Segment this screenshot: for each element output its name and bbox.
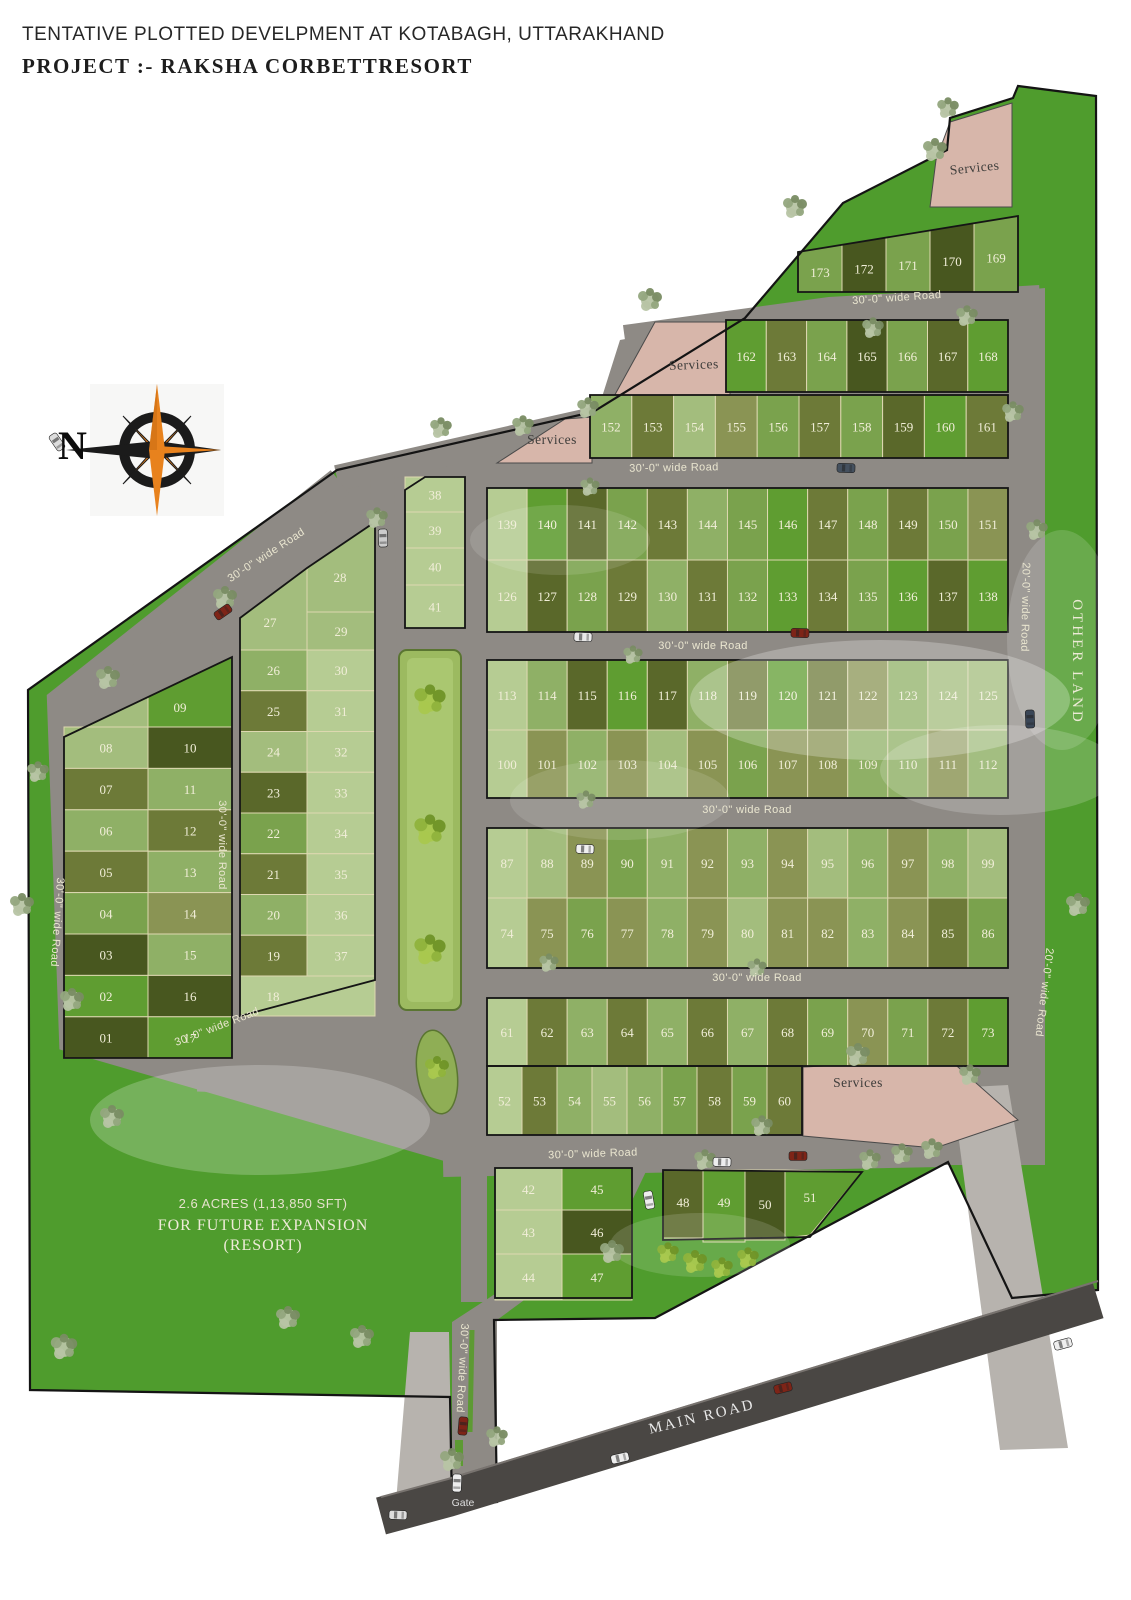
plot-number: 143 (658, 517, 678, 532)
tree-part (936, 151, 944, 159)
plot-number: 92 (701, 856, 714, 871)
tree-part (758, 1115, 765, 1122)
plot-number: 39 (429, 523, 442, 538)
plot-number: 146 (778, 517, 798, 532)
plot-number: 84 (901, 926, 915, 941)
tree-part (515, 427, 524, 436)
car-rear (1027, 722, 1034, 725)
plot-number: 93 (741, 856, 754, 871)
tree-part (418, 831, 431, 844)
car-body (789, 1152, 807, 1161)
tree-part (418, 951, 431, 964)
tree-part (542, 964, 550, 972)
plot-number: 12 (184, 824, 197, 839)
plot-number: 09 (174, 700, 187, 715)
tree-part (23, 906, 31, 914)
tree-part (493, 1426, 500, 1433)
car-icon (576, 844, 594, 854)
car-windshield (842, 464, 845, 471)
road (382, 475, 392, 1122)
plot-number: 167 (938, 349, 958, 364)
tree-part (1079, 906, 1087, 914)
tree-part (871, 1161, 878, 1168)
plot-number: 43 (522, 1225, 535, 1240)
plot-number: 47 (591, 1270, 605, 1285)
car-windshield (718, 1158, 721, 1165)
plot-number: 172 (854, 261, 874, 276)
tree-part (791, 195, 799, 203)
tree-part (786, 208, 796, 218)
tree-part (437, 417, 444, 424)
tree-part (940, 109, 949, 118)
plot-number: 08 (100, 741, 113, 756)
plot-number: 24 (267, 745, 281, 760)
north-label: N (58, 422, 87, 469)
plot-number: 63 (581, 1025, 594, 1040)
tree-part (696, 1263, 704, 1271)
tree-part (580, 409, 589, 418)
plot-number: 31 (335, 704, 348, 719)
tree-part (966, 1064, 973, 1071)
plot-number: 74 (501, 926, 515, 941)
car-icon (1053, 1337, 1073, 1350)
tree-part (108, 1105, 116, 1113)
car-body (1025, 710, 1035, 728)
plot-number: 76 (581, 926, 595, 941)
plot-number: 38 (429, 488, 442, 503)
tree-part (587, 801, 593, 807)
plot-number: 94 (781, 856, 795, 871)
plot-number: 02 (100, 989, 113, 1004)
plot-number: 58 (708, 1094, 721, 1109)
plot-number: 106 (738, 757, 758, 772)
car-rear (453, 1486, 460, 1489)
plot-number: 105 (698, 757, 718, 772)
car-icon (837, 463, 855, 473)
tree-part (584, 397, 591, 404)
plot-number: 153 (643, 420, 663, 435)
plot-number: 133 (778, 589, 798, 604)
tree-part (433, 429, 442, 438)
plot-number: 29 (335, 624, 348, 639)
plot-number: 36 (335, 908, 349, 923)
tree-part (613, 1253, 621, 1261)
cloud (470, 505, 650, 575)
tree-part (651, 301, 659, 309)
tree-part (706, 1161, 713, 1168)
tree-part (587, 477, 593, 483)
road-median (470, 1330, 472, 1432)
plot-number: 148 (858, 517, 878, 532)
car-body (452, 1474, 462, 1492)
tree-part (442, 429, 449, 436)
road-label: 30'-0" wide Road (702, 804, 791, 816)
plot-number: 168 (978, 349, 998, 364)
tree-part (926, 151, 936, 161)
plot-number: 107 (778, 757, 798, 772)
plot-number: 138 (978, 589, 998, 604)
tree-part (669, 1254, 676, 1261)
tree-part (373, 507, 380, 514)
tree-part (448, 1448, 456, 1456)
road-label: 30'-0" wide Road (216, 800, 228, 889)
tree-part (103, 1118, 113, 1128)
plot-number: 114 (538, 688, 558, 703)
car-windshield (794, 1153, 797, 1160)
tree-part (968, 317, 975, 324)
tree-part (1038, 531, 1045, 538)
plot-number: 71 (901, 1025, 914, 1040)
plot-number: 163 (777, 349, 797, 364)
tree-part (646, 288, 654, 296)
plot-number: 49 (718, 1195, 731, 1210)
plot-number: 65 (661, 1025, 674, 1040)
plot-number: 87 (501, 856, 515, 871)
tree-part (378, 519, 385, 526)
plot-number: 126 (497, 589, 517, 604)
plot-number: 06 (100, 824, 114, 839)
plot-number: 64 (621, 1025, 635, 1040)
plot-number: 52 (498, 1094, 511, 1109)
plot-number: 03 (100, 948, 113, 963)
tree-part (99, 679, 109, 689)
plot-number: 99 (982, 856, 995, 871)
tree-part (109, 679, 117, 687)
plot-number: 137 (938, 589, 958, 604)
road-label: 30'-0" wide Road (629, 461, 719, 475)
tree-part (664, 1242, 671, 1249)
tree-part (113, 1118, 121, 1126)
plot-number: 75 (541, 926, 554, 941)
plot-number: 82 (821, 926, 834, 941)
tree-part (869, 317, 876, 324)
plot-number: 77 (621, 926, 635, 941)
plot-number: 13 (184, 865, 197, 880)
plot-number: 79 (701, 926, 714, 941)
car-icon (378, 529, 388, 547)
tree-part (68, 988, 76, 996)
tree-icon (783, 195, 807, 218)
tree-part (697, 1161, 706, 1170)
tree-icon (486, 1426, 508, 1447)
tree-part (39, 773, 46, 780)
tree-part (1029, 531, 1038, 540)
tree-part (363, 1338, 371, 1346)
tree-part (962, 1076, 971, 1085)
plot-number: 136 (898, 589, 918, 604)
other-land-label: OTHER LAND (1069, 599, 1085, 724)
plot-number: 53 (533, 1094, 546, 1109)
road-label: 30'-0" wide Road (712, 972, 801, 984)
car-windshield (796, 629, 799, 636)
plot-number: 60 (778, 1094, 791, 1109)
tree-part (903, 1155, 910, 1162)
tree-part (579, 801, 587, 809)
tree-part (425, 934, 435, 944)
plot-number: 171 (898, 258, 918, 273)
plot-number: 66 (701, 1025, 715, 1040)
tree-part (489, 1438, 498, 1447)
tree-part (498, 1438, 505, 1445)
car-rear (380, 541, 387, 544)
plot-number: 55 (603, 1094, 616, 1109)
car-body (837, 463, 855, 473)
future-expansion-line3: (RESORT) (223, 1237, 302, 1254)
plot-number: 15 (184, 948, 197, 963)
tree-part (453, 1461, 461, 1469)
plot-number: 68 (781, 1025, 794, 1040)
plot-number: 45 (591, 1182, 604, 1197)
tree-part (931, 138, 939, 146)
car-icon (452, 1474, 462, 1492)
plot-number: 57 (673, 1094, 687, 1109)
plot-number: 28 (334, 570, 347, 585)
plot-number: 166 (898, 349, 918, 364)
plot-number: 50 (759, 1197, 772, 1212)
plot-number: 32 (335, 745, 348, 760)
plot-number: 44 (522, 1270, 536, 1285)
project-name: PROJECT :- RAKSHA CORBETTRESORT (22, 54, 665, 79)
plot-number: 25 (267, 704, 280, 719)
tree-part (866, 1149, 873, 1156)
plot-number: 23 (267, 785, 280, 800)
tree-part (626, 656, 634, 664)
plot-number: 14 (184, 906, 198, 921)
tree-part (289, 1319, 297, 1327)
tree-part (763, 1127, 770, 1134)
car-rear (802, 1153, 804, 1160)
road-label: 20'-0" wide Road (1018, 562, 1032, 652)
plot-number: 18 (267, 989, 280, 1004)
plot-number: 108 (818, 757, 838, 772)
tree-part (221, 586, 229, 594)
road-label: 30'-0" wide Road (658, 640, 747, 652)
plot-number: 162 (736, 349, 756, 364)
plot-number: 27 (264, 615, 278, 630)
plot-number: 134 (818, 589, 838, 604)
tree-part (431, 701, 441, 711)
plot-number: 116 (618, 688, 638, 703)
tree-part (686, 1263, 696, 1273)
tree-part (944, 97, 951, 104)
plot-number: 91 (661, 856, 674, 871)
car-windshield (579, 633, 582, 640)
tree-part (971, 1076, 978, 1083)
tree-part (660, 1254, 669, 1263)
car-body (458, 1417, 469, 1436)
plot-number: 01 (100, 1031, 113, 1046)
plot-number: 161 (977, 420, 997, 435)
tree-part (1009, 401, 1016, 408)
cloud (90, 1065, 430, 1175)
plot-number: 19 (267, 948, 280, 963)
car-windshield (379, 534, 386, 537)
gate-label: Gate (452, 1497, 475, 1509)
tree-part (60, 1334, 69, 1343)
plot-number: 56 (638, 1094, 652, 1109)
plot-number: 165 (857, 349, 877, 364)
page-title: TENTATIVE PLOTTED DEVELPMENT AT KOTABAGH… (22, 24, 665, 46)
tree-part (959, 317, 968, 326)
car-rear (725, 1159, 728, 1166)
plot-number: 147 (818, 517, 838, 532)
tree-part (428, 1069, 438, 1079)
tree-part (1069, 906, 1079, 916)
tree-part (859, 1056, 867, 1064)
tree-icon (638, 288, 662, 311)
tree-part (701, 1149, 708, 1156)
plot-number: 132 (738, 589, 758, 604)
plot-number: 35 (335, 867, 348, 882)
tree-part (874, 329, 881, 336)
plot-number: 46 (591, 1225, 605, 1240)
tree-part (849, 1056, 859, 1066)
plot-number: 67 (741, 1025, 755, 1040)
tree-part (546, 953, 552, 959)
tree-part (924, 1150, 933, 1159)
plot-number: 61 (501, 1025, 514, 1040)
car-rear (586, 634, 589, 641)
car-body (378, 529, 388, 547)
tree-part (550, 964, 556, 970)
tree-part (104, 666, 112, 674)
tree-part (754, 1127, 763, 1136)
tree-part (65, 1348, 74, 1357)
plot-number: 155 (727, 420, 747, 435)
tree-part (353, 1338, 363, 1348)
tree-part (862, 1161, 871, 1170)
plot-number: 151 (978, 517, 998, 532)
plot-number: 26 (267, 663, 281, 678)
tree-part (13, 906, 23, 916)
plot-number: 40 (429, 560, 442, 575)
services-label: Services (669, 356, 719, 373)
car-icon (574, 632, 592, 642)
plot-number: 42 (522, 1182, 535, 1197)
plot-number: 80 (741, 926, 754, 941)
plot-number: 169 (986, 251, 1006, 266)
tree-part (641, 301, 651, 311)
tree-part (18, 893, 26, 901)
plot-number: 117 (658, 688, 678, 703)
car-body (389, 1510, 407, 1520)
tree-part (749, 1259, 756, 1266)
site-plan: 1731721711701691621631641651661671681521… (0, 0, 1131, 1600)
tree-part (754, 958, 760, 964)
plot-number: 11 (184, 782, 197, 797)
plot-number: 160 (936, 420, 956, 435)
car-body (791, 628, 809, 638)
tree-part (443, 1461, 453, 1471)
plot-number: 10 (184, 741, 197, 756)
plot-number: 54 (568, 1094, 582, 1109)
plot-number: 130 (658, 589, 678, 604)
plot-number: 41 (429, 600, 442, 615)
car-windshield (460, 1422, 467, 1426)
car-rear (588, 846, 591, 853)
plot-number: 144 (698, 517, 718, 532)
plot-number: 22 (267, 826, 280, 841)
car-windshield (1026, 715, 1033, 718)
plot-number: 51 (804, 1190, 817, 1205)
services-label: Services (833, 1075, 883, 1090)
plot-number: 30 (335, 663, 348, 678)
tree-part (284, 1306, 292, 1314)
plot-number: 34 (335, 826, 349, 841)
tree-part (723, 1269, 730, 1276)
plot-number: 100 (497, 757, 517, 772)
tree-part (1033, 519, 1040, 526)
car-rear (803, 630, 806, 637)
plot-number: 158 (852, 420, 872, 435)
plot-number: 145 (738, 517, 758, 532)
plot-number: 157 (810, 420, 830, 435)
plot-number: 85 (941, 926, 954, 941)
plot-number: 131 (698, 589, 718, 604)
car-icon (389, 1510, 407, 1520)
tree-icon (430, 417, 452, 438)
tree-part (369, 519, 378, 528)
tree-icon (937, 97, 959, 118)
tree-part (963, 305, 970, 312)
plot-number: 127 (537, 589, 557, 604)
plot-number: 72 (941, 1025, 954, 1040)
plot-number: 05 (100, 865, 113, 880)
services-label: Services (527, 432, 577, 447)
car-icon (458, 1417, 469, 1436)
plot-number: 33 (335, 785, 348, 800)
plot-number: 150 (938, 517, 958, 532)
car-rear (849, 465, 852, 472)
tree-part (949, 109, 956, 116)
tree-part (418, 701, 431, 714)
plot-number: 170 (942, 254, 962, 269)
plot-number: 83 (861, 926, 874, 941)
tree-part (54, 1348, 65, 1359)
tree-part (865, 329, 874, 338)
plot-number: 69 (821, 1025, 834, 1040)
tree-part (718, 1257, 725, 1264)
car-icon (1025, 710, 1035, 728)
plot-number: 156 (768, 420, 788, 435)
tree-part (1014, 413, 1021, 420)
car-icon (789, 1152, 807, 1161)
tree-part (894, 1155, 903, 1164)
plot-number: 89 (581, 856, 594, 871)
tree-part (63, 1001, 73, 1011)
tree-part (438, 1069, 446, 1077)
tree-part (425, 684, 435, 694)
plot-number: 07 (100, 782, 114, 797)
tree-part (34, 761, 41, 768)
title-block: TENTATIVE PLOTTED DEVELPMENT AT KOTABAGH… (22, 24, 665, 79)
plot-number: 96 (861, 856, 875, 871)
plot-number: 135 (858, 589, 878, 604)
tree-part (928, 1138, 935, 1145)
tree-part (1074, 893, 1082, 901)
tree-part (431, 831, 441, 841)
tree-part (714, 1269, 723, 1278)
car-body (576, 844, 594, 854)
plot-number: 04 (100, 906, 114, 921)
plot-number: 159 (894, 420, 914, 435)
tree-part (591, 488, 597, 494)
plot-number: 21 (267, 867, 280, 882)
plot-number: 16 (184, 989, 198, 1004)
tree-part (30, 773, 39, 782)
tree-part (279, 1319, 289, 1329)
plot-number: 70 (861, 1025, 874, 1040)
